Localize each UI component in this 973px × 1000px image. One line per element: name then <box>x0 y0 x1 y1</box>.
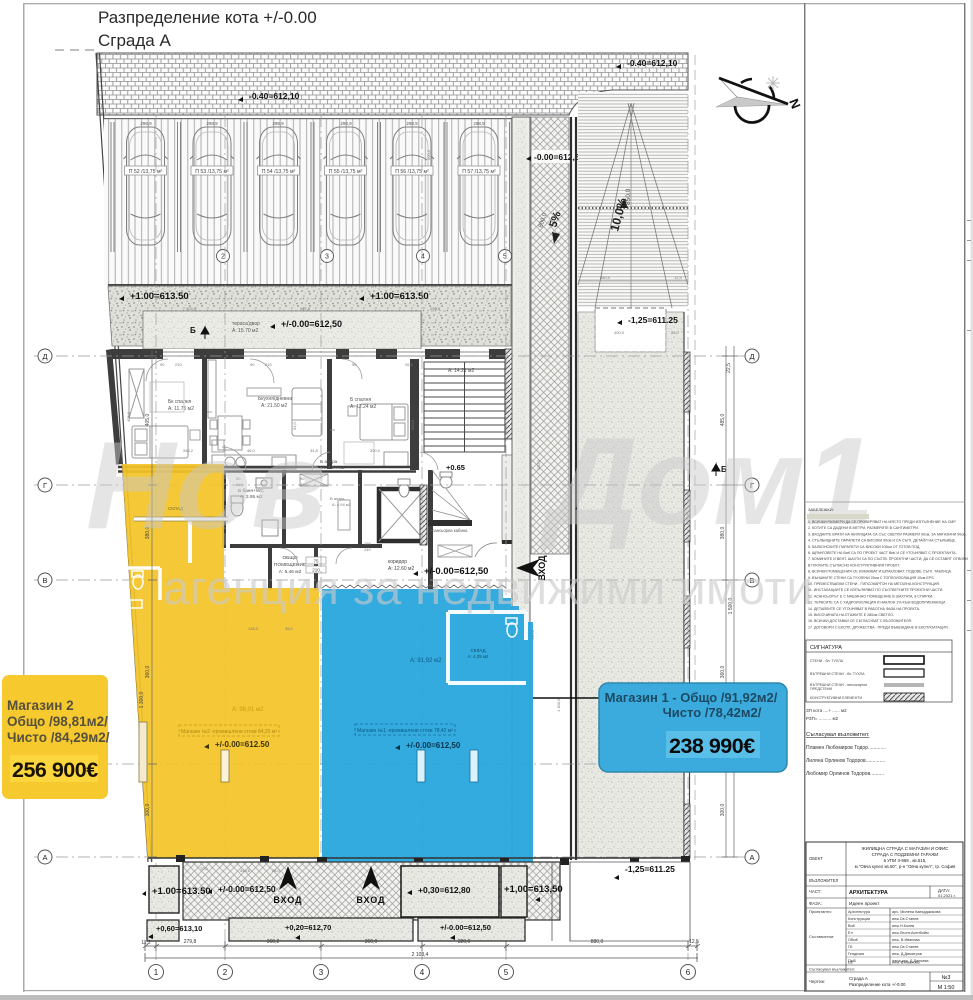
svg-text:4. СТЪЛБИЩНИТЕ ПАРАПЕТИ СА ВИС: 4. СТЪЛБИЩНИТЕ ПАРАПЕТИ СА ВИСОКИ 90см И… <box>808 539 956 543</box>
svg-text:28,0: 28,0 <box>671 330 680 335</box>
svg-text:-1,25=611.25: -1,25=611.25 <box>625 864 675 874</box>
svg-text:Чисто /84,29м2/: Чисто /84,29м2/ <box>7 730 110 745</box>
svg-text:АРХИТЕКТУРА: АРХИТЕКТУРА <box>849 890 888 896</box>
svg-text:ЧАСТ:: ЧАСТ: <box>809 889 822 894</box>
svg-text:12,5: 12,5 <box>689 939 699 945</box>
svg-text:Магазин №1 -промишлени стоки 7: Магазин №1 -промишлени стоки 78,42 м² <box>357 728 453 734</box>
svg-text:140,0: 140,0 <box>530 629 535 640</box>
svg-text:2. КОТИТЕ СА ДАДЕНИ В МЕТРИ, Р: 2. КОТИТЕ СА ДАДЕНИ В МЕТРИ, РАЗМЕРИТЕ В… <box>808 526 919 530</box>
svg-text:1. ВСИЧКИ РАЗМЕРИ ДА СЕ ПРОВЕР: 1. ВСИЧКИ РАЗМЕРИ ДА СЕ ПРОВЕРЯВАТ НА МЯ… <box>808 520 956 524</box>
svg-text:11,2: 11,2 <box>141 940 151 946</box>
svg-text:инж. Д.Димитров: инж. Д.Димитров <box>892 952 922 956</box>
svg-text:298,9: 298,9 <box>140 121 152 126</box>
svg-text:Сграда А: Сграда А <box>849 976 868 981</box>
svg-text:Геодезия: Геодезия <box>848 952 864 956</box>
svg-text:360,0: 360,0 <box>365 939 378 945</box>
svg-text:9. ВЪНШНИТЕ СТЕНИ СА ТУХЛЕНИ 2: 9. ВЪНШНИТЕ СТЕНИ СА ТУХЛЕНИ 25см С ТОПЛ… <box>808 576 935 580</box>
svg-text:35,0: 35,0 <box>285 626 294 631</box>
svg-text:ЗП кота ....+ ...... м2: ЗП кота ....+ ...... м2 <box>806 708 847 713</box>
svg-text:Пламен Любомиров Тодор........: Пламен Любомиров Тодор............. <box>806 745 886 751</box>
svg-text:Проектанти:: Проектанти: <box>809 909 832 914</box>
svg-text:ФАЗА:: ФАЗА: <box>809 901 822 906</box>
svg-text:4: 4 <box>420 968 425 977</box>
svg-text:Конструкции: Конструкции <box>848 917 870 921</box>
svg-text:238 990€: 238 990€ <box>669 734 755 758</box>
svg-text:+/-0.00=612,50: +/-0.00=612,50 <box>406 741 461 750</box>
svg-text:П 56 /13,75 м²: П 56 /13,75 м² <box>395 169 429 175</box>
svg-text:Разпределение кота +/-0.00: Разпределение кота +/-0.00 <box>98 8 317 27</box>
svg-text:5: 5 <box>503 254 507 261</box>
svg-text:155: 155 <box>364 541 371 546</box>
svg-text:П 53 /13,75 м²: П 53 /13,75 м² <box>195 169 229 175</box>
svg-text:инж.Леонт.Асенбойм: инж.Леонт.Асенбойм <box>892 931 929 935</box>
svg-text:П 54 /13,75 м²: П 54 /13,75 м² <box>262 169 296 175</box>
svg-text:+0,60=613,10: +0,60=613,10 <box>156 924 202 933</box>
svg-text:Г: Г <box>43 481 47 490</box>
svg-text:СГРАДА С ПОДЗЕМНИ ГАРАЖИ: СГРАДА С ПОДЗЕМНИ ГАРАЖИ <box>872 852 939 857</box>
svg-text:90: 90 <box>160 362 165 367</box>
svg-text:Ел: Ел <box>848 931 853 935</box>
svg-text:-0.40=612,10: -0.40=612,10 <box>627 58 678 68</box>
svg-text:Нов: Нов <box>86 417 326 555</box>
svg-text:A: 12.24 м2: A: 12.24 м2 <box>350 404 376 410</box>
svg-text:тераса'двор: тераса'двор <box>232 321 260 327</box>
svg-text:СКЛАД: СКЛАД <box>470 648 485 653</box>
svg-text:Бкухня/дневна: Бкухня/дневна <box>258 396 292 402</box>
svg-text:Любомир Орлинов Тодоров.......: Любомир Орлинов Тодоров.......... <box>806 771 884 777</box>
svg-text:ВиК: ВиК <box>848 924 856 928</box>
svg-text:инж. В.Иванова: инж. В.Иванова <box>892 961 920 965</box>
svg-text:240: 240 <box>364 547 371 552</box>
svg-text:320,0: 320,0 <box>458 939 471 945</box>
svg-text:А: 91,92 м2: А: 91,92 м2 <box>410 658 442 664</box>
svg-text:ОБЕКТ: ОБЕКТ <box>809 856 823 861</box>
svg-text:Идеен проект: Идеен проект <box>849 901 880 907</box>
svg-text:+1,00=613,50: +1,00=613,50 <box>504 884 563 895</box>
svg-text:ГБ: ГБ <box>848 945 853 949</box>
svg-text:22,5: 22,5 <box>726 363 732 373</box>
svg-text:+1.00=613.50: +1.00=613.50 <box>130 291 189 302</box>
svg-text:-1,25=611.25: -1,25=611.25 <box>628 315 678 325</box>
svg-text:A: 15.70 м2: A: 15.70 м2 <box>232 328 258 334</box>
svg-text:01.2021 г.: 01.2021 г. <box>938 893 956 898</box>
svg-text:+0,20=612,70: +0,20=612,70 <box>285 923 331 932</box>
svg-text:A: 4.94 м2: A: 4.94 м2 <box>332 502 352 507</box>
svg-text:М 1:50: М 1:50 <box>938 985 955 991</box>
svg-text:A: 11.75 м2: A: 11.75 м2 <box>168 406 194 412</box>
svg-text:6: 6 <box>686 968 691 977</box>
svg-text:-0.40=612,10: -0.40=612,10 <box>249 91 300 101</box>
svg-text:A: 21.50 м2: A: 21.50 м2 <box>261 403 287 409</box>
svg-text:Лиляна Орлинов Тодоров........: Лиляна Орлинов Тодоров.............. <box>806 758 885 764</box>
svg-text:А: А <box>42 853 47 862</box>
svg-text:5. БАЛКОНСКИТЕ ПАРАПЕТИ СА ВИС: 5. БАЛКОНСКИТЕ ПАРАПЕТИ СА ВИСОКИ 105см … <box>808 545 920 549</box>
svg-text:295,8: 295,8 <box>430 306 441 311</box>
svg-text:300,0: 300,0 <box>370 448 381 453</box>
svg-text:Сграда А: Сграда А <box>98 31 171 50</box>
svg-text:360,0: 360,0 <box>145 666 151 679</box>
svg-text:2 103,4: 2 103,4 <box>412 952 429 958</box>
svg-text:7. КОМИНИТЕ И ВЕНТ. ШАХТИ СА П: 7. КОМИНИТЕ И ВЕНТ. ШАХТИ СА ПО СЪОТВ. П… <box>808 557 968 561</box>
svg-text:ВЪЗЛОЖИТЕЛ: ВЪЗЛОЖИТЕЛ <box>809 878 838 883</box>
svg-text:Магазин 1 - Общо /91,92м2/: Магазин 1 - Общо /91,92м2/ <box>605 690 778 705</box>
svg-text:90: 90 <box>352 362 357 367</box>
svg-text:440,8: 440,8 <box>240 868 251 873</box>
svg-text:1: 1 <box>154 968 159 977</box>
svg-text:ОВиК: ОВиК <box>848 938 859 942</box>
svg-text:360,0: 360,0 <box>720 666 726 679</box>
svg-text:3. ВХОДНИТЕ ВРАТИ НА ЖИЛИЩАТА: 3. ВХОДНИТЕ ВРАТИ НА ЖИЛИЩАТА СА СЪС СВЕ… <box>808 532 966 536</box>
svg-text:+/-0.00=612.50: +/-0.00=612.50 <box>215 740 270 749</box>
svg-text:Съгласувал възложител:: Съгласувал възложител: <box>806 732 870 738</box>
svg-text:Б: Б <box>190 326 196 335</box>
svg-text:298,9: 298,9 <box>272 121 284 126</box>
svg-text:ЕЕ: ЕЕ <box>848 961 854 965</box>
svg-text:279,8: 279,8 <box>184 939 197 945</box>
svg-text:14. ДЕТАЙЛИТЕ СЕ УТОЧНЯВАТ В Р: 14. ДЕТАЙЛИТЕ СЕ УТОЧНЯВАТ В РАБОТНА ФАЗ… <box>808 607 920 611</box>
svg-text:3: 3 <box>325 254 329 261</box>
svg-text:17. ДОГОВОРИ С ЕКСПЛ. ДРУЖЕСТВ: 17. ДОГОВОРИ С ЕКСПЛ. ДРУЖЕСТВА - ПРЕДИ … <box>808 625 949 629</box>
svg-text:210: 210 <box>265 362 272 367</box>
svg-text:асансьорна кабина: асансьорна кабина <box>430 528 468 533</box>
svg-text:3: 3 <box>319 968 324 977</box>
svg-text:400,0: 400,0 <box>614 330 625 335</box>
svg-text:Дом1: Дом1 <box>539 413 874 551</box>
svg-text:210: 210 <box>175 362 182 367</box>
svg-text:П 52 /13,75 м²: П 52 /13,75 м² <box>129 169 163 175</box>
svg-text:Разпределение кота +/-0.00: Разпределение кота +/-0.00 <box>849 982 906 987</box>
svg-text:+/-0.00=612,50: +/-0.00=612,50 <box>281 319 342 329</box>
svg-text:ЗАБЕЛЕЖКИ:: ЗАБЕЛЕЖКИ: <box>808 507 834 512</box>
svg-text:В ПЛОЧИТЕ СЪГЛАСНО КОНСТРУКТИВ: В ПЛОЧИТЕ СЪГЛАСНО КОНСТРУКТИВНИЯ ПРОЕКТ… <box>808 563 900 567</box>
svg-text:8. ВСИЧКИ ПОМЕЩЕНИЯ СЕ ИЗМАЗВА: 8. ВСИЧКИ ПОМЕЩЕНИЯ СЕ ИЗМАЗВАТ И ШПАКЛО… <box>808 570 952 574</box>
svg-text:Магазин №2 -промишлени стоки 8: Магазин №2 -промишлени стоки 84,29 м² <box>181 729 277 735</box>
svg-text:90: 90 <box>250 362 255 367</box>
svg-text:28,0: 28,0 <box>272 868 281 873</box>
svg-text:ПРЕДСТЕНИ: ПРЕДСТЕНИ <box>810 687 832 691</box>
svg-text:ЖИЛИЩНА СГРАДА С МАГАЗИН И ОФИ: ЖИЛИЩНА СГРАДА С МАГАЗИН И ОФИС <box>862 846 949 851</box>
svg-text:Чисто /78,42м2/: Чисто /78,42м2/ <box>663 705 762 720</box>
svg-text:298,9: 298,9 <box>206 121 218 126</box>
svg-text:2: 2 <box>221 254 225 261</box>
svg-text:Чертеж:: Чертеж: <box>809 979 825 984</box>
svg-text:298,9: 298,9 <box>473 121 485 126</box>
svg-text:4: 4 <box>421 254 425 261</box>
svg-text:Д: Д <box>749 352 754 361</box>
svg-text:1 300,0: 1 300,0 <box>139 691 145 708</box>
svg-text:300,0: 300,0 <box>720 804 726 817</box>
svg-text:Б спалня: Б спалня <box>350 397 371 403</box>
svg-text:120,0: 120,0 <box>536 459 541 470</box>
svg-text:11. ИНСТАЛАЦИИТЕ СЕ ИЗПЪЛНЯВАТ: 11. ИНСТАЛАЦИИТЕ СЕ ИЗПЪЛНЯВАТ ПО СЪОТВЕ… <box>808 588 943 592</box>
svg-text:+1.00=613.50: +1.00=613.50 <box>152 886 211 897</box>
svg-text:СТЕНИ - бл. ТУХЛА: СТЕНИ - бл. ТУХЛА <box>810 659 844 663</box>
svg-text:А: А <box>749 853 754 862</box>
svg-text:880,0: 880,0 <box>591 939 604 945</box>
svg-text:Общо /98,81м2/: Общо /98,81м2/ <box>7 714 108 729</box>
svg-text:15. ВИСОЧИНАТА НА ЕТАЖИТЕ Е 28: 15. ВИСОЧИНАТА НА ЕТАЖИТЕ Е 280см СВЕТЛО… <box>808 613 894 617</box>
svg-text:6. ЩРАНГОВЕТЕ НА ВиК СА ПО ПРО: 6. ЩРАНГОВЕТЕ НА ВиК СА ПО ПРОЕКТ ЧАСТ В… <box>808 551 957 555</box>
svg-text:арх. Милена Кавърджикова: арх. Милена Кавърджикова <box>892 910 941 914</box>
svg-text:П 55 /13,75 м²: П 55 /13,75 м² <box>329 169 363 175</box>
svg-text:+/-0.00=612,50: +/-0.00=612,50 <box>440 923 491 932</box>
svg-text:10. ПРЕМЕСТВАЕМИ СТЕНИ - ГИПСО: 10. ПРЕМЕСТВАЕМИ СТЕНИ - ГИПСОКАРТОН НА … <box>808 582 940 586</box>
svg-text:КОНСТРУКТИВНИ ЕЛЕМЕНТИ: КОНСТРУКТИВНИ ЕЛЕМЕНТИ <box>810 696 862 700</box>
svg-text:+0,30=612,80: +0,30=612,80 <box>418 885 471 895</box>
svg-text:300,0: 300,0 <box>145 804 151 817</box>
svg-text:1 300,0: 1 300,0 <box>556 698 561 712</box>
svg-text:13. ТЕРАСИТЕ СА С ХИДРОИЗОЛАЦИ: 13. ТЕРАСИТЕ СА С ХИДРОИЗОЛАЦИЯ И НАКЛОН… <box>808 601 946 605</box>
svg-text:70,0: 70,0 <box>200 866 209 871</box>
svg-text:+1.00=613.50: +1.00=613.50 <box>370 291 429 302</box>
svg-text:СИГНАТУРА: СИГНАТУРА <box>810 645 842 651</box>
svg-text:м."Овча купел кв.50", р-н "Овч: м."Овча купел кв.50", р-н "Овча купел", … <box>855 864 956 869</box>
svg-text:298,9: 298,9 <box>340 121 352 126</box>
svg-text:Съгласувал възложител:: Съгласувал възложител: <box>809 967 855 972</box>
svg-text:298,9: 298,9 <box>406 121 418 126</box>
svg-text:В: В <box>42 576 47 585</box>
svg-text:+0.65: +0.65 <box>446 463 465 472</box>
svg-text:Бк спалня: Бк спалня <box>168 399 192 405</box>
svg-text:П 57 /13,75 м²: П 57 /13,75 м² <box>462 169 496 175</box>
svg-text:РЗП= .......... м2: РЗП= .......... м2 <box>806 716 839 721</box>
svg-text:+/-0.00=612,50: +/-0.00=612,50 <box>218 884 276 894</box>
svg-text:ВХОД: ВХОД <box>273 895 302 905</box>
svg-text:A: 4.25 м2: A: 4.25 м2 <box>467 654 489 659</box>
svg-text:256 900€: 256 900€ <box>12 758 98 782</box>
svg-text:Архитектура: Архитектура <box>848 910 871 914</box>
svg-text:агенция за недвижими имоти: агенция за недвижими имоти <box>163 561 813 614</box>
svg-text:300,0: 300,0 <box>410 419 415 430</box>
svg-text:В антра: В антра <box>330 496 345 501</box>
svg-text:Д: Д <box>42 352 47 361</box>
svg-text:2: 2 <box>223 968 228 977</box>
svg-text:850,0: 850,0 <box>625 188 632 205</box>
svg-text:инж.Н.Колев: инж.Н.Колев <box>892 924 914 928</box>
svg-text:16. ВСИЧКИ ДОСТАВКИ СЕ СЪГЛАСУ: 16. ВСИЧКИ ДОСТАВКИ СЕ СЪГЛАСУВАТ С ВЪЗЛ… <box>808 619 912 623</box>
svg-text:26,6: 26,6 <box>405 362 414 367</box>
svg-text:№3: №3 <box>942 975 951 981</box>
svg-text:360,2: 360,2 <box>267 939 280 945</box>
svg-text:инж.Св.Станев: инж.Св.Станев <box>892 945 918 949</box>
svg-text:ВЪТРЕШНИ СТЕНИ - бл. ТУХЛА: ВЪТРЕШНИ СТЕНИ - бл. ТУХЛА <box>810 672 865 676</box>
svg-text:5: 5 <box>504 968 509 977</box>
svg-text:инж. В.Иванова: инж. В.Иванова <box>892 938 920 942</box>
svg-text:Съставители:: Съставители: <box>809 934 834 939</box>
svg-text:12,5: 12,5 <box>674 275 683 280</box>
svg-text:303,0: 303,0 <box>186 306 197 311</box>
svg-text:А: 98,01 м2: А: 98,01 м2 <box>232 707 264 713</box>
svg-text:Магазин 2: Магазин 2 <box>7 698 74 713</box>
svg-text:135,0: 135,0 <box>248 626 259 631</box>
svg-text:880,0: 880,0 <box>600 275 611 280</box>
svg-text:500,0: 500,0 <box>426 149 431 160</box>
svg-text:12. АСАНСЬОРЪТ Е С МАШИННО ПОМ: 12. АСАНСЬОРЪТ Е С МАШИННО ПОМЕЩЕНИЕ В Ш… <box>808 594 933 598</box>
svg-text:ВХОД: ВХОД <box>356 895 385 905</box>
svg-text:в УПИ II-969 , кв.515,: в УПИ II-969 , кв.515, <box>884 858 927 863</box>
svg-text:287,5: 287,5 <box>300 306 311 311</box>
svg-text:инж.Св.Станев: инж.Св.Станев <box>892 917 918 921</box>
